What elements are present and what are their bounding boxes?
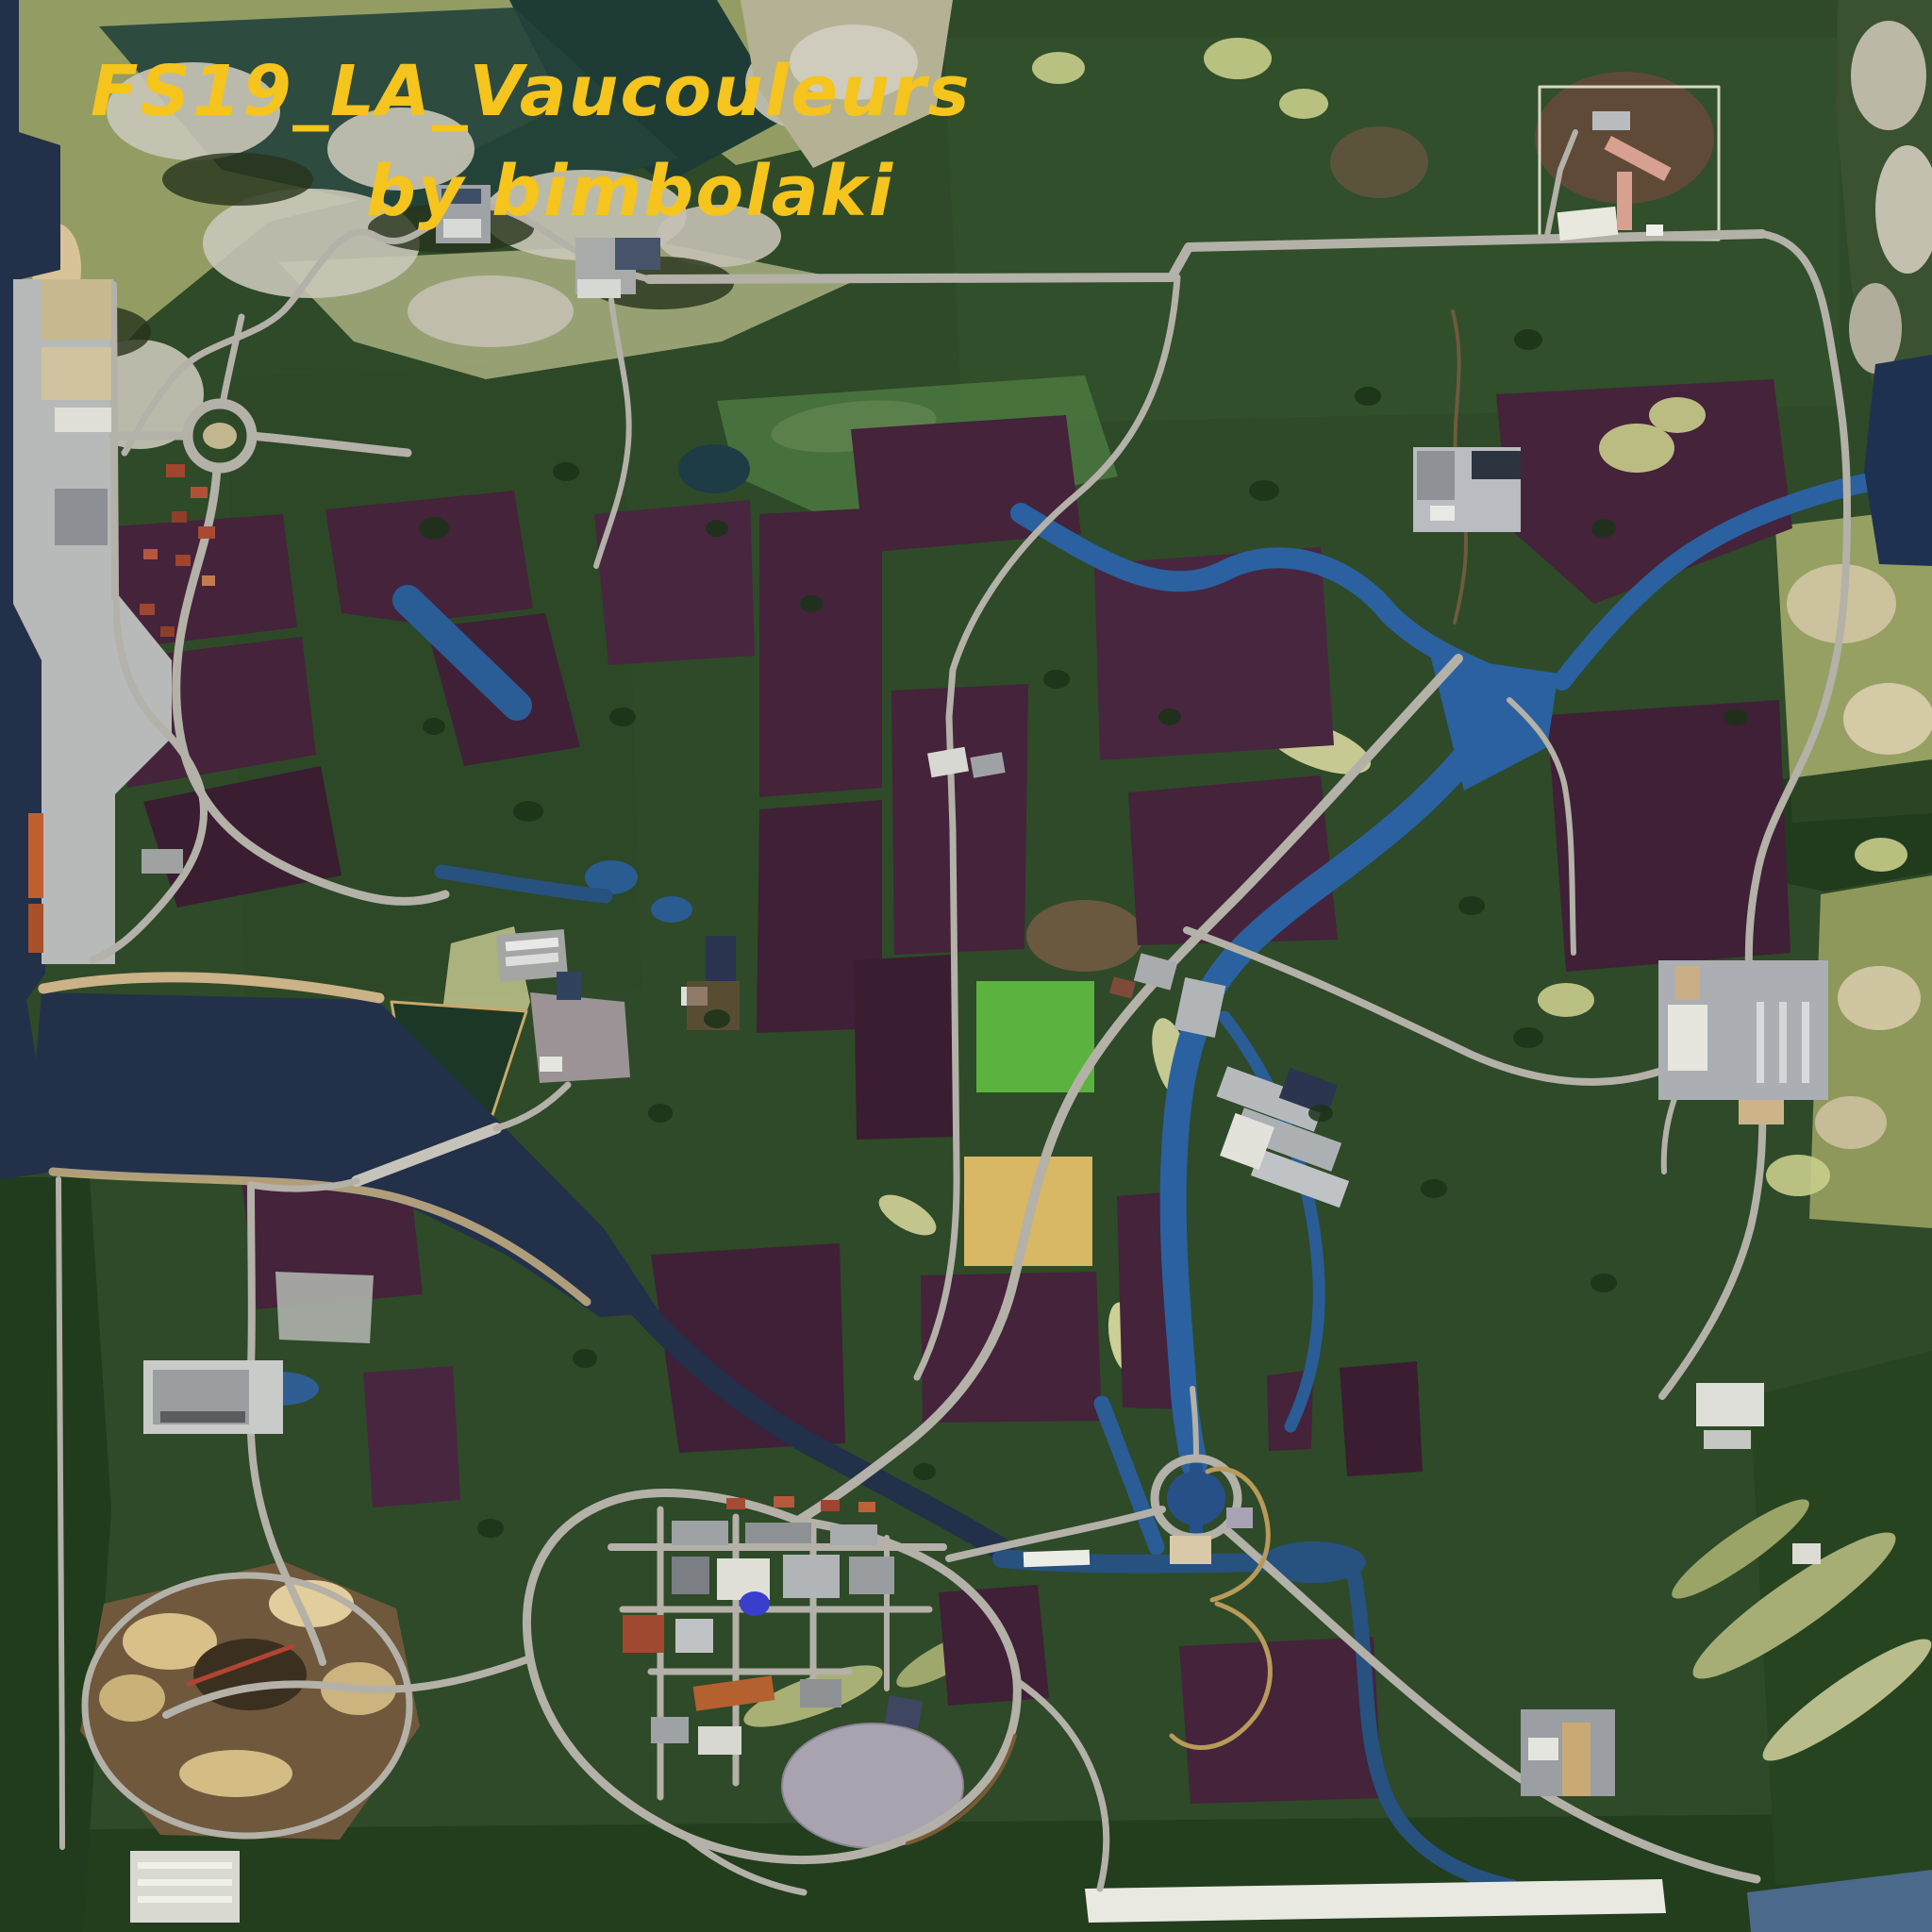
trees-18 [1308,1105,1333,1122]
trees-15 [1458,896,1485,915]
pond-top [678,444,750,493]
quarry-rock [99,1674,165,1722]
trees-5 [513,801,543,822]
fields-22 [939,1585,1049,1706]
rock-ne [1849,283,1902,374]
pale-trees [1855,838,1907,872]
fields-7 [759,508,882,797]
village-house [191,487,208,498]
se-factory-white [1528,1738,1558,1760]
town-house-red [858,1502,875,1512]
roundabout-center [203,423,237,449]
east-farm-white [1668,1005,1707,1071]
estate-shed-white [1646,225,1663,236]
mill-tan [1170,1536,1211,1564]
trees-11 [1249,480,1279,501]
pad-west-farm [275,1272,374,1343]
town-house-red [726,1498,745,1509]
map-canvas: FS19_LA_Vaucouleurs by bimbolaki [0,0,1932,1932]
biogas-digester [557,972,581,1000]
trees-4 [609,708,636,726]
east-farm-tan [1675,966,1700,1000]
map-title-line1: FS19_LA_Vaucouleurs [91,51,972,132]
trees-20 [573,1349,597,1368]
pale-trees [1538,983,1594,1017]
warehouse-port [42,279,111,340]
trees-21 [477,1519,504,1538]
pale-trees [1204,38,1272,79]
village-house [172,511,187,523]
facility-topcenter-solar [615,238,660,270]
trees-22 [1591,1274,1617,1292]
fields-9 [891,684,1028,955]
quarry-rock [179,1750,292,1797]
town-block [675,1619,713,1653]
town-pool-blue [740,1591,770,1616]
town-block [849,1557,894,1594]
village-house [166,464,185,477]
pale-trees [1766,1155,1830,1196]
trees-2 [553,462,579,481]
grass-field-bright [976,981,1094,1092]
trees-16 [1513,1027,1543,1048]
village-house [202,575,215,586]
trees-19 [913,1463,936,1480]
parking-white-booth [540,1057,562,1072]
greenhouse-row [138,1896,232,1903]
trees-1 [419,517,449,540]
east-farm-skylight [1757,1002,1764,1083]
village-house [160,626,175,637]
pale-trees [1599,424,1674,473]
town-house-red [623,1615,664,1653]
trees-3 [706,520,728,537]
factory-northeast-wing [1417,451,1455,500]
east-barn-white [1696,1383,1764,1426]
town-block [651,1717,689,1743]
dock-shed [142,849,183,874]
east-barn-annex [1704,1430,1751,1449]
town-block [745,1523,811,1543]
trees-6 [704,1009,730,1028]
se-factory-dock [1562,1723,1591,1796]
west-facility-strip [160,1411,245,1423]
trees-10 [1043,670,1070,689]
dirt-paddock [1026,900,1143,972]
container-stack [28,813,43,898]
dirt-patch-ne [1330,126,1428,198]
east-farm-tan [1739,1100,1784,1124]
trees-9 [800,595,823,612]
village-house [140,604,155,615]
se-shed-white [1792,1543,1821,1564]
pale-trees [1649,397,1706,433]
estate-house-pink [1617,172,1632,230]
rock-blob [408,275,574,347]
ridge-shadow [162,153,313,206]
fs19-map-overview: FS19_LA_Vaucouleurs by bimbolaki [0,0,1932,1932]
fields-21 [1179,1637,1382,1804]
tan-east [1815,1096,1887,1149]
factory-northeast-roof [1472,451,1521,479]
trees-8 [423,718,445,735]
trees-14 [1591,519,1616,538]
village-house [143,549,158,559]
pond-mid [651,896,692,923]
trees-24 [1158,708,1181,725]
fields-10 [854,955,953,1140]
dam-white [1024,1550,1091,1567]
greenhouse-row [138,1879,232,1886]
facility-topcenter-roof [577,279,621,298]
fields-12 [1128,775,1338,945]
warehouse-port [42,347,111,400]
trees-23 [1724,708,1748,725]
warehouse-port-white [55,408,111,432]
town-block [672,1557,709,1594]
warehouse-port [53,600,113,645]
east-farm-skylight [1802,1002,1809,1083]
town-solar-roof [885,1695,924,1729]
town-block-white [698,1726,741,1755]
trees-13 [1514,329,1542,350]
container-stack [28,904,43,953]
factory-northeast-white [1430,506,1455,521]
town-house-red [821,1500,840,1511]
town-block [830,1524,877,1545]
greenhouse-row [138,1862,232,1869]
village-house [175,555,191,566]
town-block [783,1555,840,1598]
greenhouse-base [130,1851,240,1923]
warehouse-port [55,489,108,545]
fields-24 [363,1366,460,1507]
fields-20 [1340,1361,1423,1476]
fields-6 [594,500,755,665]
village-house [198,526,215,539]
pad-lavender [1226,1507,1253,1528]
fields-14 [1547,700,1790,972]
trees-17 [1421,1179,1447,1198]
east-farm-skylight [1779,1002,1787,1083]
map-title-line2: by bimbolaki [366,151,894,232]
trees-12 [1355,387,1381,406]
trees-7 [648,1104,673,1123]
rock-ne [1851,21,1926,130]
town-house-red [774,1496,794,1507]
pale-trees [1279,89,1328,119]
pale-trees [1032,52,1085,84]
tan-east [1843,683,1932,755]
town-block [672,1521,728,1545]
town-block [800,1679,841,1707]
tan-east [1838,966,1921,1030]
estate-shed [1592,111,1630,130]
barn-dark-roof [706,936,736,981]
